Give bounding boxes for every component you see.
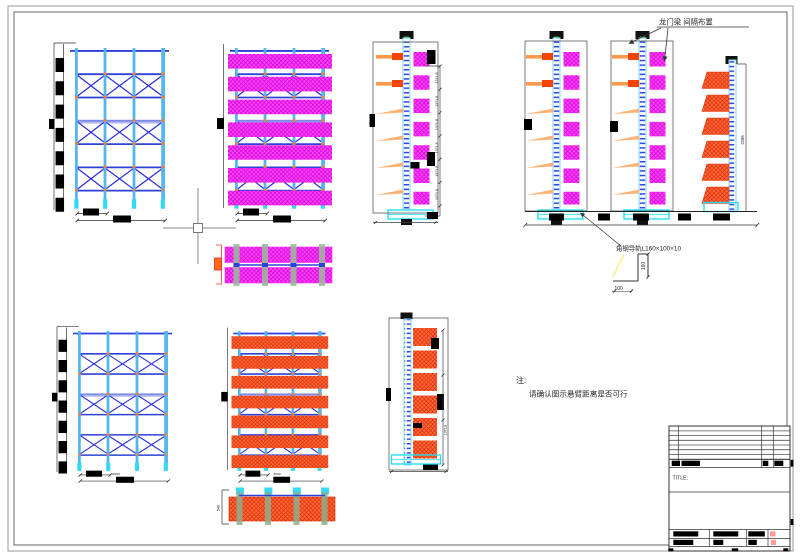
level-dim-2: 1371.8 — [435, 96, 439, 107]
level-dim-5: 1371.8 — [435, 166, 439, 177]
note-head: 注: — [516, 375, 526, 385]
drawing-note: 注: 请确认图示悬臂距离是否可行 — [516, 375, 628, 399]
side-rack-right-a — [524, 31, 587, 225]
plan-view-orange: 540 — [217, 490, 336, 525]
front-rack-bottom-left: 3000 — [52, 327, 172, 483]
title-block: TITLE: — [668, 426, 793, 552]
side-rack-top-right: 1371.8 1371.8 1371.8 1371.8 1371.8 1371.… — [370, 31, 442, 225]
side-rack-right-b — [610, 31, 673, 225]
level-dim-6: 1371.8 — [435, 189, 439, 200]
right-group-baseline — [524, 212, 760, 228]
drawing-sheet: 1371.8 1371.8 1371.8 1371.8 1371.8 1371.… — [0, 0, 800, 557]
stack-height-dim: 2286 — [740, 135, 745, 145]
gantry-beam-label: 龙门梁 间隔布置 — [659, 18, 713, 27]
front-rack-top-middle-magenta — [217, 44, 329, 223]
bay-width-dim-2: 3000 — [273, 472, 281, 476]
level-dim-1: 1371.8 — [435, 73, 439, 84]
plan-depth-dim: 540 — [217, 505, 221, 511]
level-dim-3: 1371.8 — [435, 119, 439, 130]
angle-rail-label: 角钢导轨L160×100×10 — [616, 244, 681, 253]
level-dim-4: 1371.8 — [435, 142, 439, 153]
angle-height-dim: 160 — [641, 262, 647, 271]
note-body: 请确认图示悬臂距离是否可行 — [529, 389, 628, 399]
title-block-label: TITLE: — [673, 476, 689, 482]
level-dim-bottom: 1371.8 — [443, 425, 447, 435]
gantry-beam-annotation: 龙门梁 间隔布置 — [629, 18, 749, 62]
side-rack-bottom-orange: 1371.8 — [386, 313, 448, 474]
front-rack-top-left — [49, 43, 169, 223]
bay-width-dim-1: 3000 — [112, 472, 120, 476]
angle-width-dim: 100 — [615, 286, 624, 292]
front-rack-bottom-middle-orange: 3000 — [221, 328, 325, 483]
cad-drawing: 1371.8 1371.8 1371.8 1371.8 1371.8 1371.… — [0, 0, 800, 557]
material-stack-right-c: 2286 — [702, 56, 746, 212]
plan-view-magenta — [215, 244, 333, 286]
